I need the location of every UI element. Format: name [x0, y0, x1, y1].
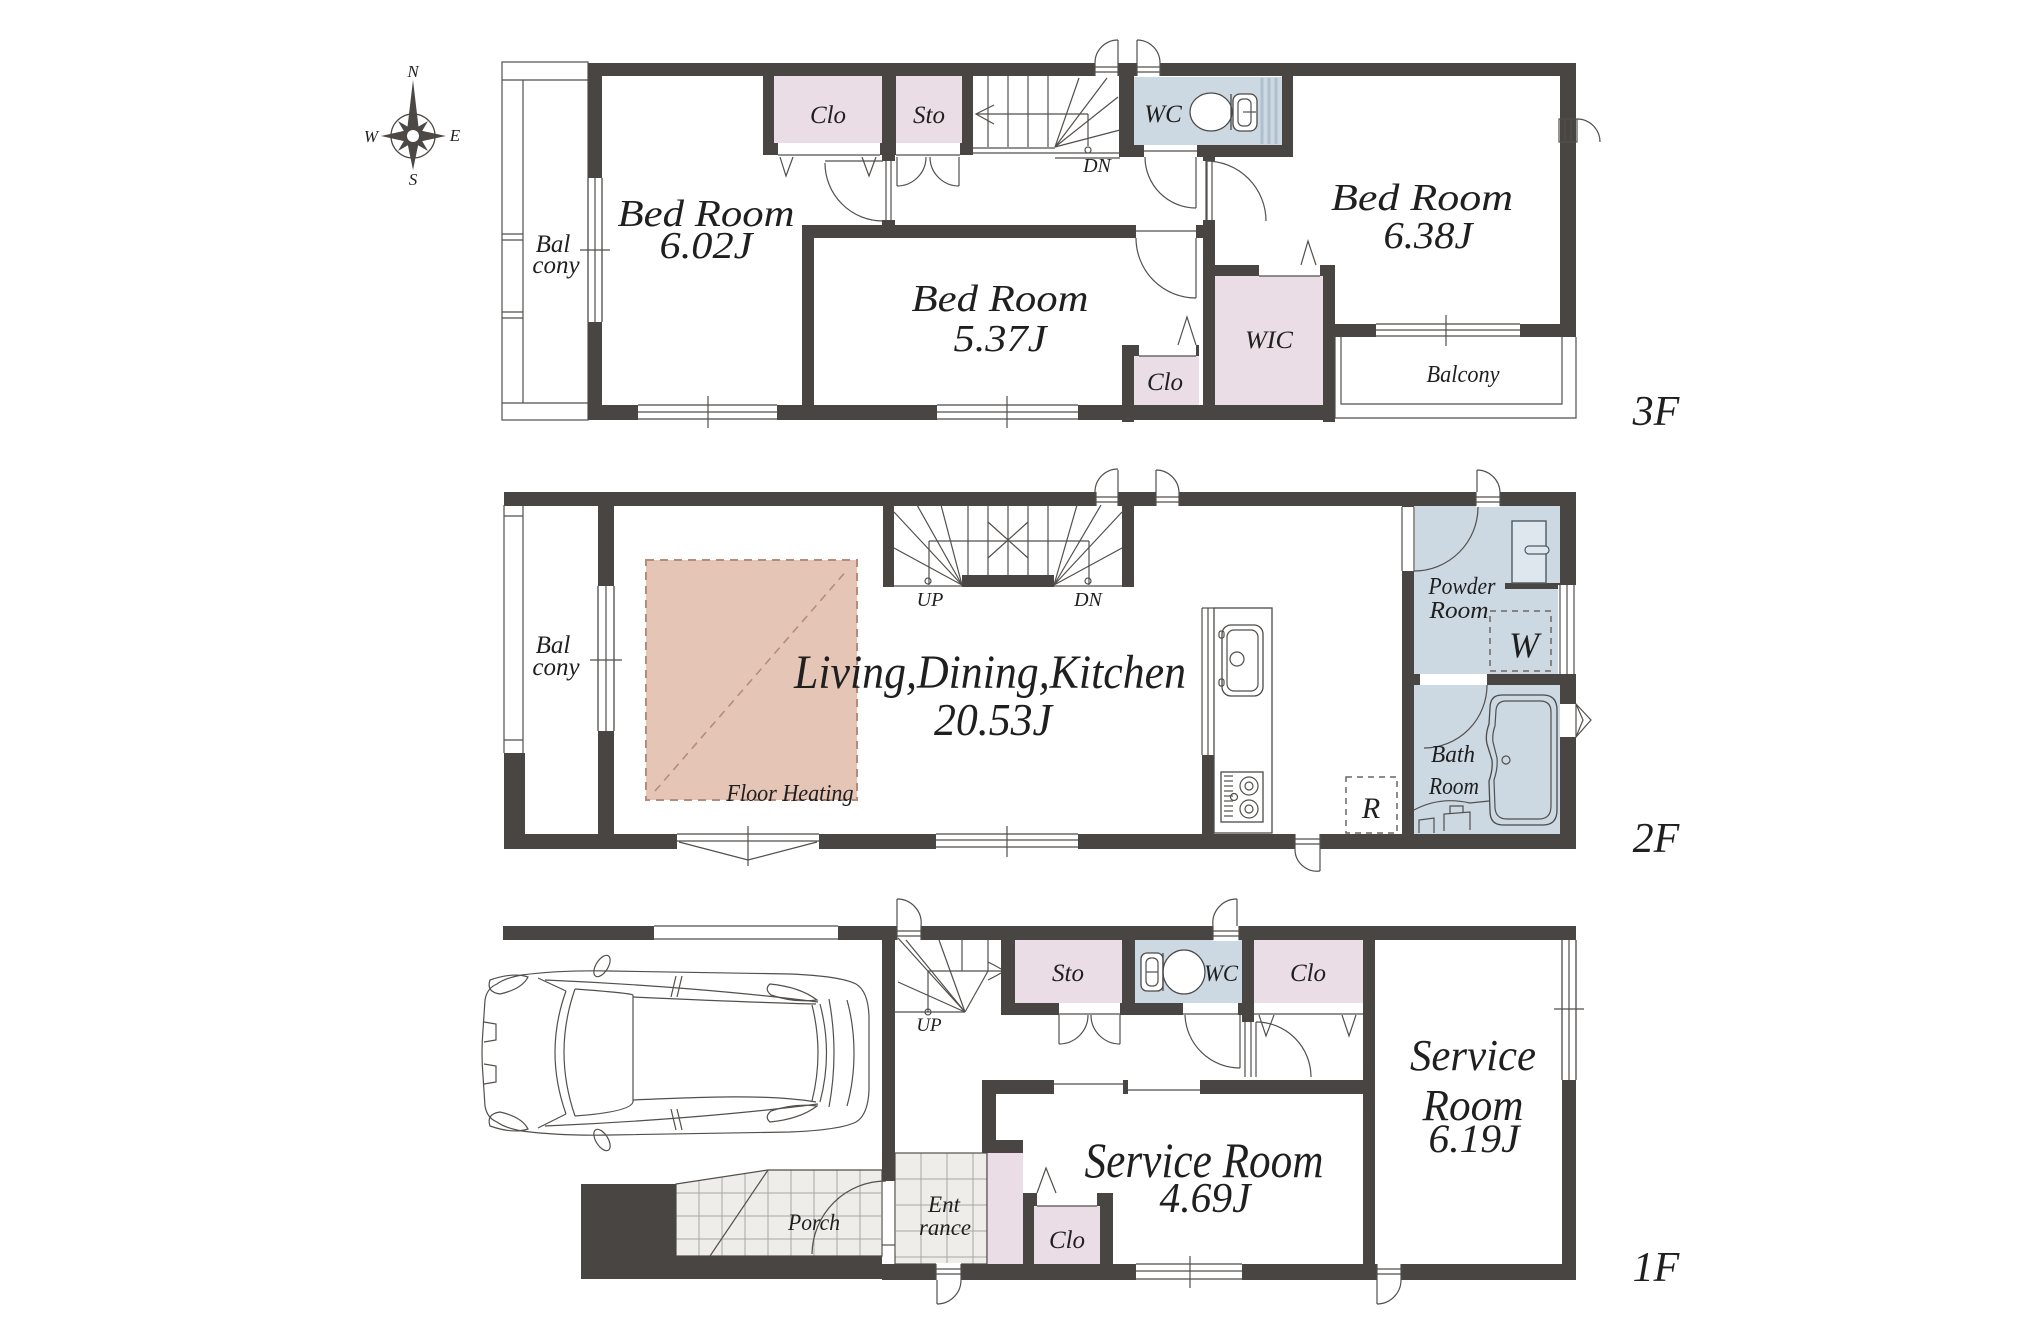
svg-text:5.37J: 5.37J [954, 318, 1049, 360]
svg-text:Bed Room: Bed Room [1331, 177, 1513, 219]
svg-text:Room: Room [1428, 598, 1488, 624]
svg-text:Sto: Sto [913, 102, 945, 129]
svg-text:WIC: WIC [1245, 327, 1293, 354]
svg-text:WC: WC [1204, 961, 1239, 986]
svg-text:Powder: Powder [1428, 574, 1496, 600]
svg-text:WC: WC [1144, 101, 1182, 128]
svg-text:rance: rance [919, 1215, 971, 1240]
svg-text:6.19J: 6.19J [1429, 1116, 1522, 1161]
svg-text:DN: DN [1082, 155, 1112, 177]
svg-text:Room: Room [1428, 774, 1479, 800]
svg-text:cony: cony [532, 252, 580, 279]
svg-text:S: S [409, 170, 418, 189]
svg-text:Service: Service [1410, 1031, 1536, 1080]
svg-text:1F: 1F [1633, 1245, 1680, 1291]
svg-text:Living,Dining,Kitchen: Living,Dining,Kitchen [793, 646, 1186, 699]
svg-text:Porch: Porch [787, 1210, 840, 1235]
svg-text:Floor Heating: Floor Heating [726, 781, 854, 807]
svg-text:6.02J: 6.02J [660, 225, 755, 267]
svg-text:W: W [364, 127, 380, 146]
svg-text:Sto: Sto [1052, 960, 1084, 987]
svg-text:Bath: Bath [1431, 742, 1475, 768]
svg-text:R: R [1361, 792, 1380, 825]
svg-text:2F: 2F [1633, 816, 1680, 862]
svg-text:Clo: Clo [1290, 960, 1326, 987]
svg-text:3F: 3F [1632, 389, 1680, 435]
svg-text:UP: UP [917, 589, 944, 611]
svg-text:Ent: Ent [927, 1192, 961, 1217]
svg-text:UP: UP [916, 1015, 942, 1036]
svg-text:E: E [449, 126, 461, 145]
svg-text:20.53J: 20.53J [934, 694, 1054, 745]
svg-text:4.69J: 4.69J [1160, 1176, 1253, 1222]
svg-text:Bed Room: Bed Room [912, 278, 1089, 320]
svg-text:Clo: Clo [1049, 1227, 1085, 1254]
svg-text:Clo: Clo [1147, 369, 1183, 396]
svg-text:Balcony: Balcony [1427, 362, 1500, 388]
svg-text:N: N [406, 62, 420, 81]
svg-text:Clo: Clo [810, 102, 846, 129]
svg-text:W: W [1509, 625, 1542, 665]
svg-text:6.38J: 6.38J [1384, 215, 1475, 257]
svg-text:cony: cony [532, 654, 580, 681]
svg-text:DN: DN [1073, 589, 1103, 611]
